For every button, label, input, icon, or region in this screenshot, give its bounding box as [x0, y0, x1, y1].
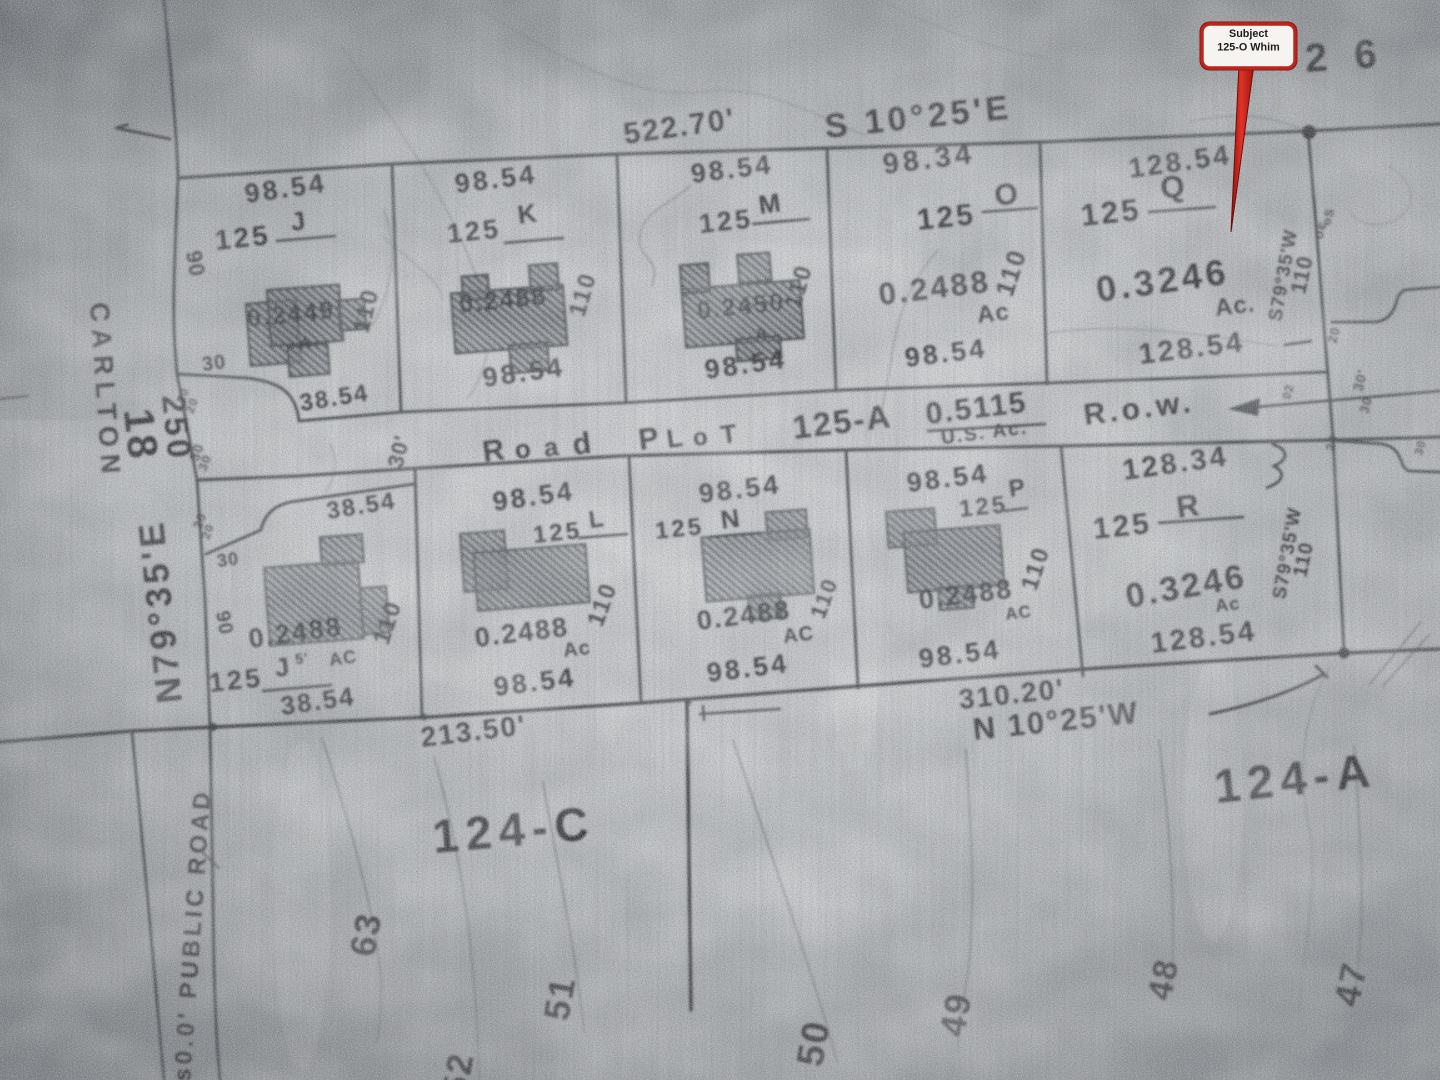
svg-text:Subject: Subject [1229, 28, 1268, 40]
svg-text:125-O Whim: 125-O Whim [1217, 42, 1279, 54]
